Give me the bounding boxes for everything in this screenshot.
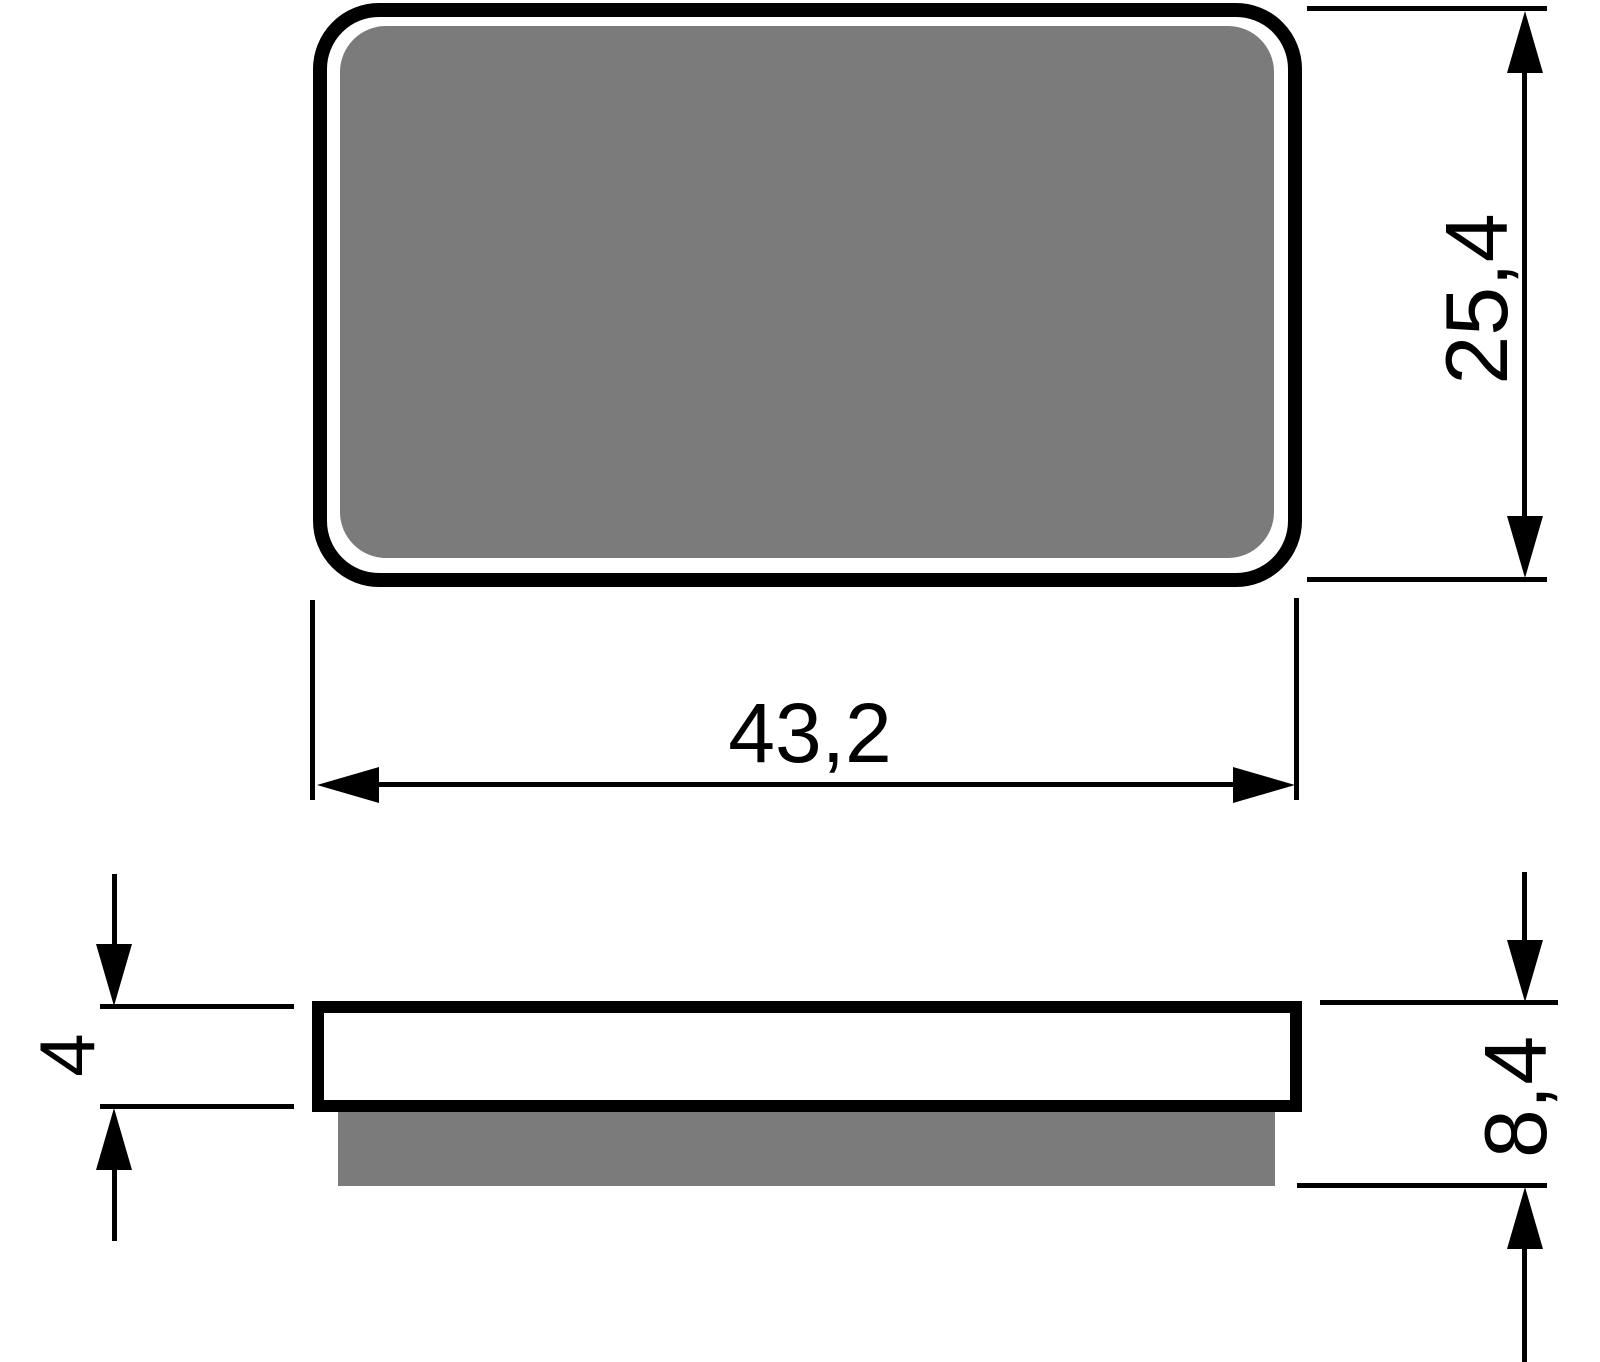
top-view-friction-surface [340,26,1274,558]
total-thickness-label: 8,4 [1472,1036,1560,1158]
width-dim-label: 43,2 [728,691,892,775]
total-dim-arrow-down-icon [1507,940,1543,1002]
backplate-dim-arrow-up-icon [96,1108,132,1170]
width-dim-line [350,782,1250,787]
technical-drawing-canvas: 43,2 25,4 4 8,4 [0,0,1600,1362]
backplate-dim-leader-bottom [112,1168,117,1241]
height-dim-arrow-down-icon [1507,516,1543,578]
height-dim-arrow-up-icon [1507,11,1543,73]
width-dim-extension-line-left [310,600,315,800]
backplate-dim-extension-line-top [100,1004,294,1009]
total-dim-leader-bottom [1522,1247,1527,1362]
total-dim-arrow-up-icon [1507,1187,1543,1249]
side-view-backplate [312,1001,1302,1112]
width-dim-arrow-right-icon [1233,767,1295,803]
total-dim-extension-line-top [1320,1000,1558,1005]
width-dim-arrow-left-icon [317,767,379,803]
height-dim-label: 25,4 [1433,213,1521,384]
side-view-friction-pad [338,1112,1275,1186]
backplate-thickness-label: 4 [28,1033,106,1076]
backplate-dim-leader-top [112,874,117,950]
total-dim-leader-top [1522,872,1527,946]
backplate-dim-arrow-down-icon [96,944,132,1006]
